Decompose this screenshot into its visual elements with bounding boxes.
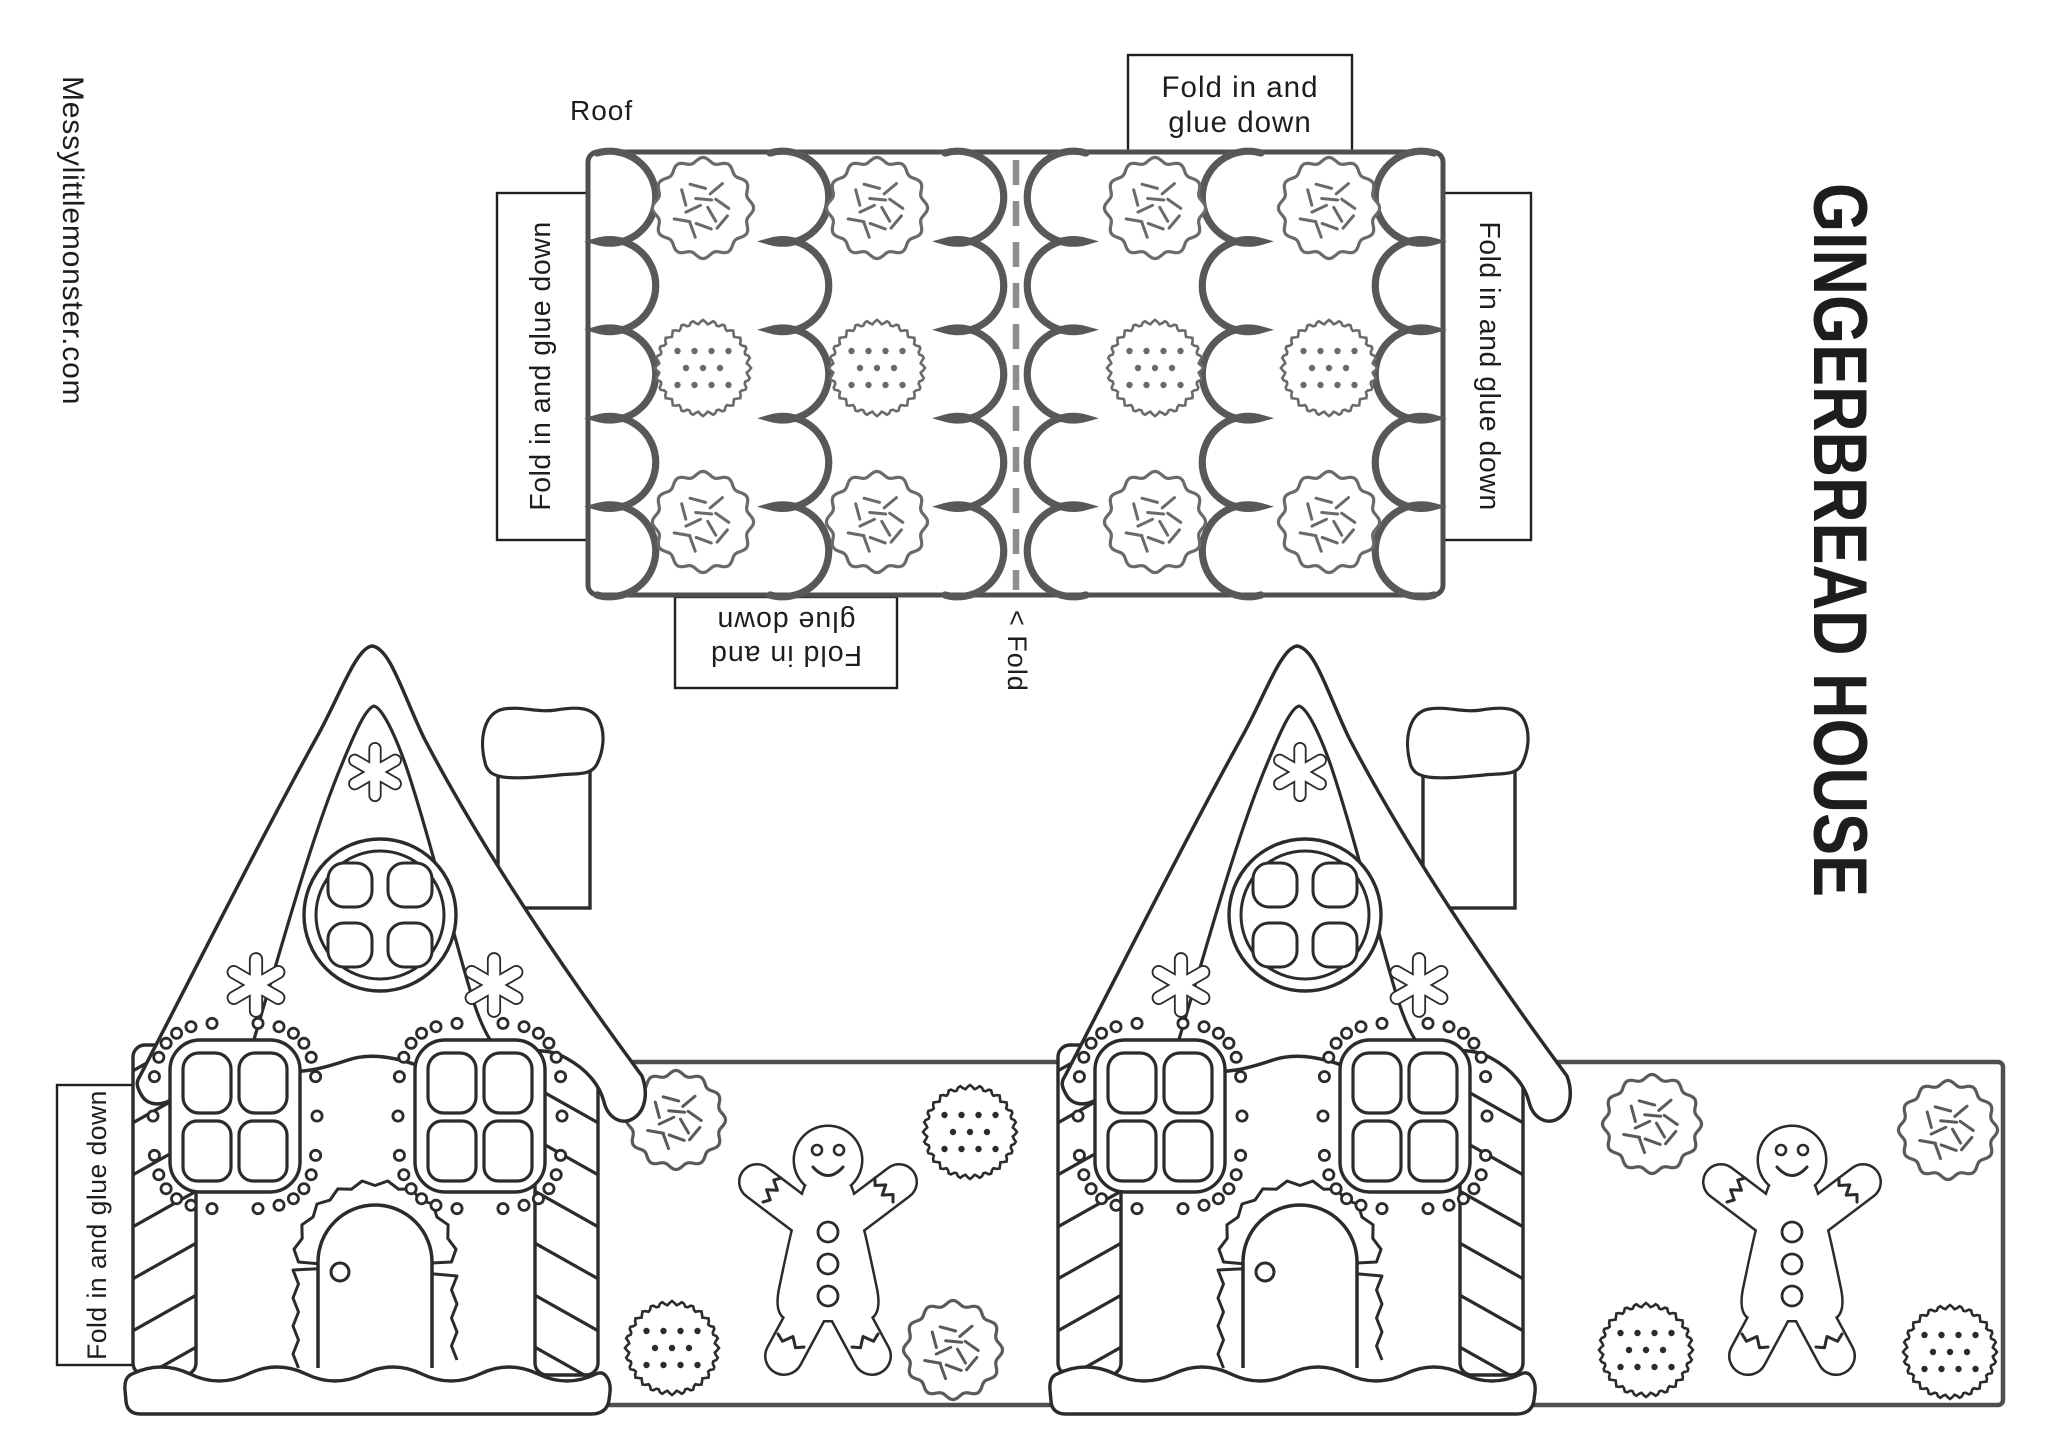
round-window <box>304 839 456 991</box>
watermark: Messylittlemonster.com <box>56 76 89 405</box>
tab-fold-top-line2: glue down <box>1168 106 1312 139</box>
fold-marker: < Fold <box>1002 610 1032 692</box>
tab-fold-roof-left-text: Fold in and glue down <box>525 221 557 510</box>
page-title: GINGERBREAD HOUSE <box>1797 183 1882 897</box>
house-back <box>1050 646 1570 1420</box>
tab-fold-roof-bottom-line2: glue down <box>717 605 856 637</box>
tab-fold-roof-left: Fold in and glue down <box>497 193 588 540</box>
door <box>318 1205 432 1368</box>
tab-fold-top: Fold in and glue down <box>1128 55 1352 151</box>
chimney-icing-cap <box>483 708 603 778</box>
tab-fold-house-left: Fold in and glue down <box>57 1085 140 1365</box>
tab-fold-roof-bottom: Fold in and glue down <box>675 597 897 688</box>
door-knob <box>331 1263 349 1281</box>
tab-fold-top-line1: Fold in and <box>1162 71 1319 104</box>
tab-fold-roof-right-text: Fold in and glue down <box>1473 221 1505 510</box>
house-front <box>125 646 645 1420</box>
printable-sheet: Roof Fold in and glue down Fold in and g… <box>0 0 2048 1449</box>
tab-fold-house-left-text: Fold in and glue down <box>82 1090 112 1360</box>
tab-fold-roof-bottom-line1: Fold in and <box>710 639 862 671</box>
tab-fold-roof-right: Fold in and glue down <box>1443 193 1531 540</box>
roof-label: Roof <box>570 95 633 126</box>
roof-panel <box>588 151 1443 597</box>
